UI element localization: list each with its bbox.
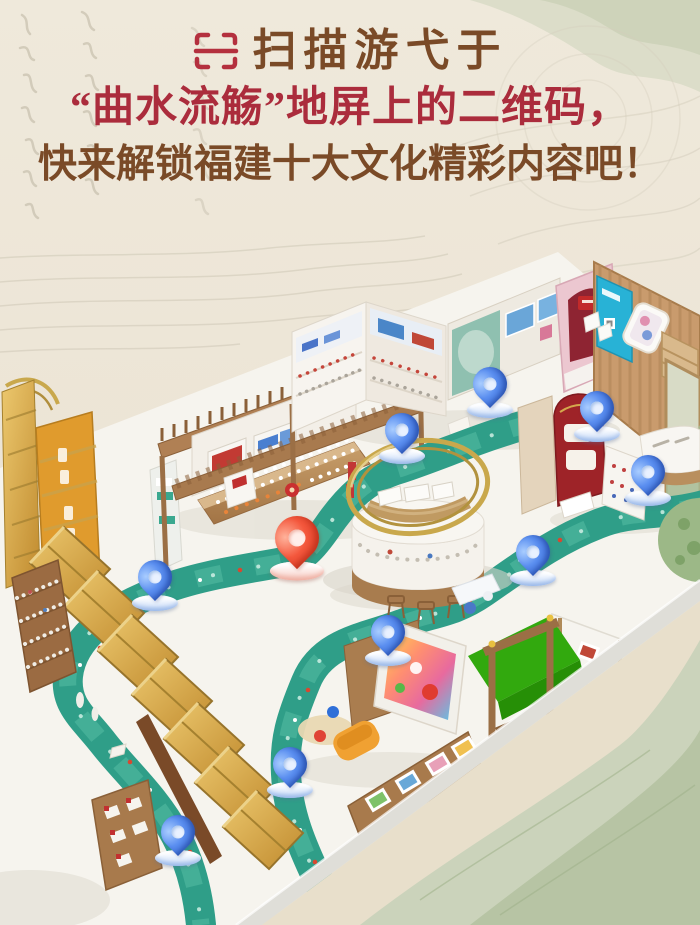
header-line3-text: 快来解锁福建十大文化精彩内容吧！ [0,143,700,188]
header-line1-text: 扫描游弋于 [253,26,508,77]
qr-scan-icon [193,30,239,72]
header-line2-text: “曲水流觞”地屏上的二维码， [0,84,700,132]
poster: 扫描游弋于 “曲水流觞”地屏上的二维码， 快来解锁福建十大文化精彩内容吧！ [0,0,700,925]
header: 扫描游弋于 “曲水流觞”地屏上的二维码， 快来解锁福建十大文化精彩内容吧！ [0,26,700,188]
header-line-1: 扫描游弋于 [0,26,700,77]
